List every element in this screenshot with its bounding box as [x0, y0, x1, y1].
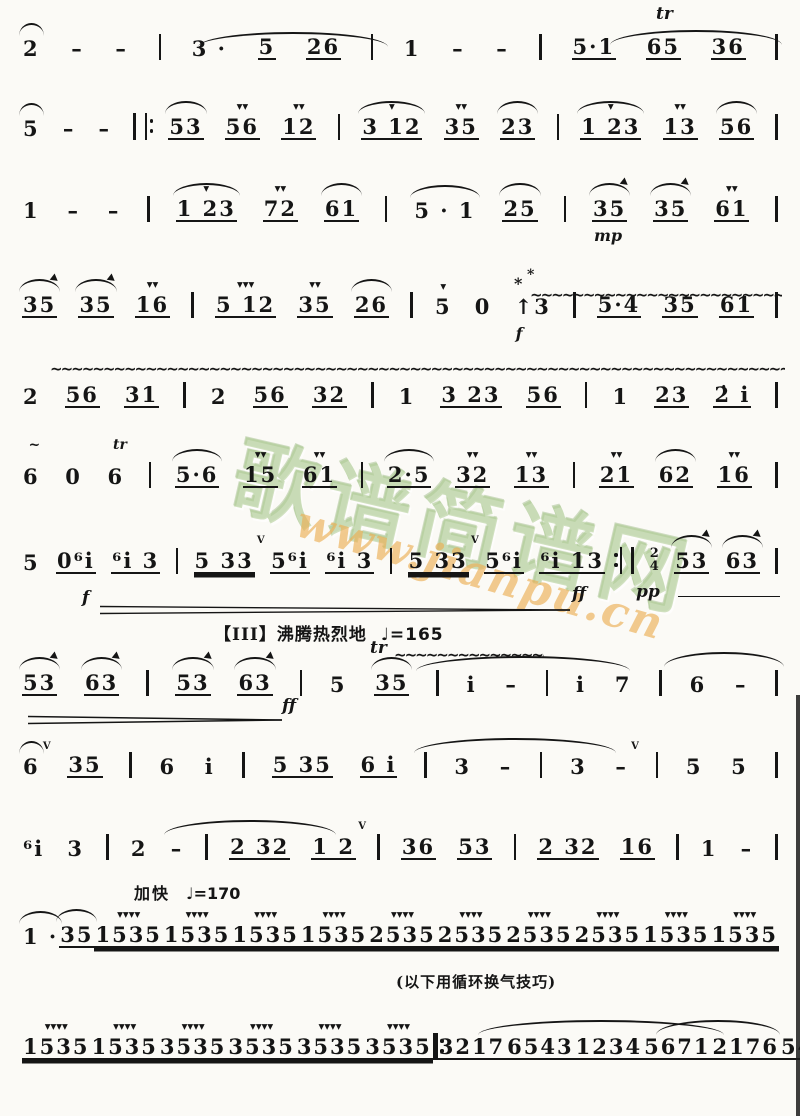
- accent-marks: ▼▼: [281, 103, 316, 111]
- barline: [176, 548, 179, 574]
- note-group: i: [466, 674, 478, 696]
- barline: [775, 462, 778, 488]
- slur-arc: [56, 909, 97, 922]
- note-group: 16: [620, 836, 655, 860]
- barline: [539, 34, 542, 60]
- breath-mark: V: [43, 742, 51, 752]
- slur-arc: [19, 279, 60, 292]
- score-system: 6~06tr5·615▼▼61▼▼2·532▼▼13▼▼21▼▼6216▼▼: [22, 454, 778, 488]
- note-group: 35: [22, 294, 57, 318]
- score-system: 256312563213 23561232̇ i: [22, 374, 778, 408]
- note-group: 13▼▼: [663, 116, 698, 140]
- barline: [385, 196, 388, 222]
- slur-arc: [589, 183, 630, 196]
- note-group: 72▼▼: [263, 198, 298, 222]
- slur-arc: [19, 23, 44, 36]
- note-group: 35: [78, 294, 113, 318]
- dynamic-label: ff: [572, 586, 586, 603]
- barline: [775, 114, 778, 140]
- note-group: 56: [65, 384, 100, 408]
- note-group: –: [98, 118, 113, 140]
- barline: [338, 114, 341, 140]
- hairpin-dynamic: [100, 600, 570, 619]
- note-group: 3: [569, 756, 588, 778]
- slur-arc: [384, 449, 435, 462]
- note-group: 1535▼▼▼▼: [90, 1036, 158, 1060]
- accent-marks: ▼▼▼▼: [94, 911, 162, 919]
- note-group: 5·6: [175, 464, 220, 488]
- note-group: 2535▼▼▼▼: [437, 924, 505, 948]
- note-group: 1535▼▼▼▼: [642, 924, 710, 948]
- circular-breathing-annotation: (以下用循环换气技巧): [396, 971, 556, 992]
- note-group: 5⁶i: [484, 550, 524, 574]
- barline: [436, 670, 439, 696]
- accent-marks: ▼▼▼▼: [642, 911, 710, 919]
- note-group: 1535▼▼▼▼: [300, 924, 368, 948]
- note-group: 6tr: [107, 466, 126, 488]
- note-group: ⁶i 13: [539, 550, 605, 574]
- score-system: 1 ·351535▼▼▼▼1535▼▼▼▼1535▼▼▼▼1535▼▼▼▼253…: [22, 914, 778, 948]
- accent-marks: ▼▼▼▼: [364, 1023, 432, 1031]
- section-3-header: 【III】沸腾热烈地♩=165: [214, 620, 444, 645]
- slur-arc: [165, 101, 206, 114]
- note-group: –: [740, 838, 755, 860]
- barline: [129, 752, 132, 778]
- barline: [371, 382, 374, 408]
- sheet-music-page: 歌谱简谱网 www.jianpu.cn 2––3 ·5261––5·165365…: [0, 0, 800, 1116]
- barline: [585, 382, 588, 408]
- note-group: 53: [168, 116, 203, 140]
- barline: [775, 548, 778, 574]
- accent-marks: ▼▼▼▼: [227, 1023, 295, 1031]
- note-group: 3: [453, 756, 472, 778]
- breath-mark: V: [471, 536, 479, 546]
- time-signature-number: 4: [650, 560, 659, 574]
- barline: [540, 752, 543, 778]
- note-group: –: [734, 674, 749, 696]
- slur-arc: [410, 185, 479, 198]
- barline: [775, 752, 778, 778]
- note-group: 1535▼▼▼▼: [22, 1036, 90, 1060]
- slur-arc: [19, 657, 60, 670]
- barline: [659, 670, 662, 696]
- ornament-label: tr: [113, 438, 127, 452]
- accent-marks: ▼▼▼▼: [437, 911, 505, 919]
- note-group: 35▼▼: [444, 116, 479, 140]
- note-group: 56: [719, 116, 754, 140]
- scan-edge-artifact: [796, 695, 800, 1116]
- time-signature: 24: [650, 547, 659, 574]
- note-group: 21▼▼: [599, 464, 634, 488]
- ornament-label: *: [527, 268, 534, 282]
- slur-arc: [499, 183, 540, 196]
- note-group: –: [170, 838, 185, 860]
- barline: [656, 752, 659, 778]
- note-group: –: [107, 200, 122, 222]
- note-group: 2̇ i: [713, 384, 751, 408]
- note-group: 5⁶i: [270, 550, 310, 574]
- note-group: 2: [130, 838, 149, 860]
- note-group: 5 · 1: [413, 200, 476, 222]
- score-system: 50⁶i⁶i 35 33V5⁶i⁶i 35 33V5⁶i⁶i 13245363: [22, 540, 778, 574]
- accelerando-label: 加快: [134, 884, 170, 903]
- barline: [205, 834, 208, 860]
- note-group: 1535▼▼▼▼: [163, 924, 231, 948]
- note-group: 3535▼▼▼▼: [364, 1036, 432, 1060]
- note-group: 53: [457, 836, 492, 860]
- note-group: 5671: [643, 1036, 711, 1060]
- slur-arc: [497, 101, 538, 114]
- note-group: –: [499, 756, 514, 778]
- dynamic-label: f: [82, 590, 89, 607]
- note-group: 53: [674, 550, 709, 574]
- note-group: 13▼▼: [514, 464, 549, 488]
- accent-marks: ▼▼: [263, 185, 298, 193]
- accent-marks: ▼▼: [297, 281, 332, 289]
- note-group: –: [70, 38, 85, 60]
- accent-marks: ▼▼: [225, 103, 260, 111]
- section-3-title: 【III】沸腾热烈地: [214, 625, 367, 645]
- note-group: 5▼: [434, 296, 453, 318]
- barline: [147, 196, 150, 222]
- accent-marks: ▼▼: [717, 451, 752, 459]
- barline: [775, 670, 778, 696]
- note-group: 5: [329, 674, 348, 696]
- barline: [514, 834, 517, 860]
- note-group: 56: [253, 384, 288, 408]
- note-group: 6543: [506, 1036, 574, 1060]
- note-group: 2: [210, 386, 229, 408]
- note-group: 53: [22, 672, 57, 696]
- note-group: 6~: [22, 466, 41, 488]
- accent-marks: ▼▼▼▼: [505, 911, 573, 919]
- accent-marks: ▼▼: [514, 451, 549, 459]
- accent-marks: ▼▼: [444, 103, 479, 111]
- accelerando-marking: 加快♩=170: [134, 880, 240, 904]
- accent-marks: ▼▼: [714, 185, 749, 193]
- section-3-tempo-marking: ♩=165: [381, 625, 444, 645]
- note-group: 35: [653, 198, 688, 222]
- score-system: ⁶i32–2 321 2V36532 32161–: [22, 826, 778, 860]
- accent-marks: ▼▼: [663, 103, 698, 111]
- note-group: 5 12▼▼▼: [215, 294, 276, 318]
- note-group: 3: [66, 838, 85, 860]
- repeat-barline-end: [620, 547, 634, 574]
- note-group: 16▼▼: [717, 464, 752, 488]
- barline: [775, 196, 778, 222]
- slur-arc: [172, 449, 223, 462]
- note-group: 1535▼▼▼▼: [711, 924, 779, 948]
- barline: [564, 196, 567, 222]
- note-group: 15▼▼: [243, 464, 278, 488]
- note-group: 5: [730, 756, 749, 778]
- note-group: 35: [67, 754, 102, 778]
- note-group: 35: [59, 924, 94, 948]
- note-group: 1234: [575, 1036, 643, 1060]
- barline: [191, 292, 194, 318]
- note-group: 6: [689, 674, 708, 696]
- score-system: 5––5356▼▼12▼▼3 12▼35▼▼231 23▼13▼▼56: [22, 106, 778, 140]
- accent-marks: ▼▼▼▼: [163, 911, 231, 919]
- barline: [775, 382, 778, 408]
- note-group: i: [204, 756, 216, 778]
- note-group: 3535▼▼▼▼: [159, 1036, 227, 1060]
- note-group: 1 23▼: [580, 116, 641, 140]
- note-group: 16▼▼: [135, 294, 170, 318]
- note-group: 1: [403, 38, 422, 60]
- slur-arc: [650, 183, 691, 196]
- accent-marks: ▼▼▼▼: [296, 1023, 364, 1031]
- slur-arc: [351, 279, 392, 292]
- note-group: ⁶i 3: [325, 550, 374, 574]
- note-group: 53: [175, 672, 210, 696]
- accent-marks: ▼▼: [302, 451, 337, 459]
- accent-marks: ▼▼▼: [215, 281, 276, 289]
- barline: [149, 462, 152, 488]
- slur-arc: [81, 657, 122, 670]
- note-group: 2 32: [537, 836, 598, 860]
- score: 2––3 ·5261––5·165365––5356▼▼12▼▼3 12▼35▼…: [0, 0, 800, 1116]
- score-system: 53635363535i–i76–: [22, 662, 778, 696]
- hairpin-dynamic: [28, 710, 282, 729]
- barline: [390, 548, 393, 574]
- note-group: i: [575, 674, 587, 696]
- dynamic-label: *: [514, 276, 522, 292]
- barline: [410, 292, 413, 318]
- note-group: –: [451, 38, 466, 60]
- note-group: 35▼▼: [297, 294, 332, 318]
- note-group: 6V: [22, 756, 41, 778]
- note-group: –V: [614, 756, 629, 778]
- slur-arc: [19, 911, 62, 924]
- note-group: 12▼▼: [281, 116, 316, 140]
- note-group: 0: [474, 296, 493, 318]
- slur-arc: [655, 449, 696, 462]
- note-group: 63: [237, 672, 272, 696]
- barline: [361, 462, 364, 488]
- note-group: 5 33V: [408, 550, 469, 574]
- barline: [775, 34, 778, 60]
- barline: [159, 34, 162, 60]
- note-group: 3 23: [440, 384, 501, 408]
- note-group: 2·5: [387, 464, 432, 488]
- note-group: 3535▼▼▼▼: [227, 1036, 295, 1060]
- note-group: –: [495, 38, 510, 60]
- repeat-barline-start: [133, 113, 147, 140]
- accent-marks: ▼▼▼▼: [711, 911, 779, 919]
- note-group: 23: [500, 116, 535, 140]
- note-group: 63: [84, 672, 119, 696]
- repeat-dots: [150, 119, 154, 123]
- barline: [146, 670, 149, 696]
- time-signature-number: 2: [650, 547, 659, 561]
- note-group: 1: [22, 200, 41, 222]
- slur-arc: [75, 279, 116, 292]
- note-group: 7: [614, 674, 633, 696]
- note-group: 5 33V: [194, 550, 255, 574]
- accent-marks: ▼▼▼▼: [231, 911, 299, 919]
- accent-marks: ▼▼▼▼: [22, 1023, 90, 1031]
- barline: [676, 834, 679, 860]
- note-group: ⁶i: [22, 838, 45, 860]
- ornament-label: ~: [29, 438, 41, 452]
- note-group: 1 2V: [311, 836, 356, 860]
- note-group: –: [114, 38, 129, 60]
- accent-marks: ▼▼: [599, 451, 634, 459]
- note-group: 1 23▼: [176, 198, 237, 222]
- breath-mark: V: [257, 536, 265, 546]
- dynamic-label: tr: [656, 6, 673, 23]
- accent-marks: ▼▼▼▼: [300, 911, 368, 919]
- note-group: ⁶i 3: [111, 550, 160, 574]
- note-group: 5 35: [272, 754, 333, 778]
- score-system: 1––1 23▼72▼▼615 · 12535mp3561▼▼: [22, 188, 778, 222]
- slur-arc: [19, 741, 44, 754]
- note-group: 5: [22, 118, 41, 140]
- slur-arc: [716, 101, 757, 114]
- note-group: –: [67, 200, 82, 222]
- note-group: 3535▼▼▼▼: [296, 1036, 364, 1060]
- slur-arc: [321, 183, 362, 196]
- note-group: 3 12▼: [361, 116, 422, 140]
- note-group: 2 32: [229, 836, 290, 860]
- note-group: 1535▼▼▼▼: [231, 924, 299, 948]
- note-group: 32▼▼: [455, 464, 490, 488]
- note-group: 56▼▼: [225, 116, 260, 140]
- note-group: 3217: [438, 1036, 506, 1060]
- note-group: 61▼▼: [302, 464, 337, 488]
- note-group: 31: [124, 384, 159, 408]
- slur-arc: [722, 535, 763, 548]
- accent-marks: ▼▼▼▼: [90, 1023, 158, 1031]
- note-group: 26: [354, 294, 389, 318]
- barline: [183, 382, 186, 408]
- note-group: 5·1: [572, 36, 617, 60]
- slur-arc: [234, 657, 275, 670]
- note-group: 0: [64, 466, 83, 488]
- note-group: 5: [685, 756, 704, 778]
- note-group: 61▼▼: [714, 198, 749, 222]
- slur-arc: [19, 103, 44, 116]
- barline: [242, 752, 245, 778]
- repeat-dots: [614, 553, 618, 557]
- barline: [106, 834, 109, 860]
- note-group: –: [504, 674, 519, 696]
- breath-mark: V: [358, 822, 366, 832]
- slur-arc: [671, 535, 712, 548]
- dynamic-label: pp: [636, 584, 660, 601]
- dynamic-label: ff: [282, 698, 296, 715]
- note-group: 25: [502, 198, 537, 222]
- note-group: 35mp: [592, 198, 627, 222]
- note-group: 36: [401, 836, 436, 860]
- slur-arc: [172, 657, 213, 670]
- phrase-slur: [664, 652, 784, 667]
- accent-marks: ▼▼: [135, 281, 170, 289]
- note-group: 2: [22, 38, 41, 60]
- breath-mark: V: [631, 742, 639, 752]
- note-group: 2535▼▼▼▼: [574, 924, 642, 948]
- diminuendo-line: [678, 596, 780, 597]
- accent-marks: ▼▼: [455, 451, 490, 459]
- dynamic-label: mp: [594, 228, 622, 244]
- note-group: 2535▼▼▼▼: [505, 924, 573, 948]
- accent-marks: ▼▼▼▼: [159, 1023, 227, 1031]
- note-group: 1535▼▼▼▼: [94, 924, 162, 948]
- note-group: 1 ·: [22, 926, 59, 948]
- phrase-slur: [164, 820, 336, 835]
- note-group: 32: [312, 384, 347, 408]
- note-group: 1: [611, 386, 630, 408]
- note-group: 61: [324, 198, 359, 222]
- note-group: 2: [22, 386, 41, 408]
- dynamic-label: f: [516, 326, 523, 342]
- phrase-slur: [414, 738, 616, 753]
- note-group: 35: [374, 672, 409, 696]
- barline: [546, 670, 549, 696]
- note-group: 23: [654, 384, 689, 408]
- accent-marks: ▼▼▼▼: [368, 911, 436, 919]
- note-group: 56: [526, 384, 561, 408]
- barline: [300, 670, 303, 696]
- note-group: 2176: [712, 1036, 780, 1060]
- note-group: 6: [158, 756, 177, 778]
- accent-marks: ▼▼: [243, 451, 278, 459]
- note-group: 1: [398, 386, 417, 408]
- note-group: 2535▼▼▼▼: [368, 924, 436, 948]
- barline: [573, 462, 576, 488]
- note-group: 0⁶i: [56, 550, 96, 574]
- trill-wavy-line: ~~~~~~~~~~~~~~~~~~~~~~~~~~~~~~~~~~~~~~~~…: [530, 290, 782, 302]
- note-group: 63: [725, 550, 760, 574]
- barline: [775, 834, 778, 860]
- note-group: 1: [700, 838, 719, 860]
- note-group: 62: [658, 464, 693, 488]
- barline: [424, 752, 427, 778]
- note-group: 5: [22, 552, 41, 574]
- score-system: 6V356i5 356 i3–3–V55: [22, 744, 778, 778]
- barline: [557, 114, 560, 140]
- barline: [377, 834, 380, 860]
- accelerando-tempo: ♩=170: [186, 884, 240, 903]
- note-group: 6 i: [360, 754, 398, 778]
- accent-marks: ▼: [434, 283, 453, 291]
- trill-wavy-line: ~~~~~~~~~~~~~~~~~~~~~~~~~~~~~~~~~~~~~~~~…: [50, 364, 785, 376]
- accent-marks: ▼▼▼▼: [574, 911, 642, 919]
- note-group: –: [62, 118, 77, 140]
